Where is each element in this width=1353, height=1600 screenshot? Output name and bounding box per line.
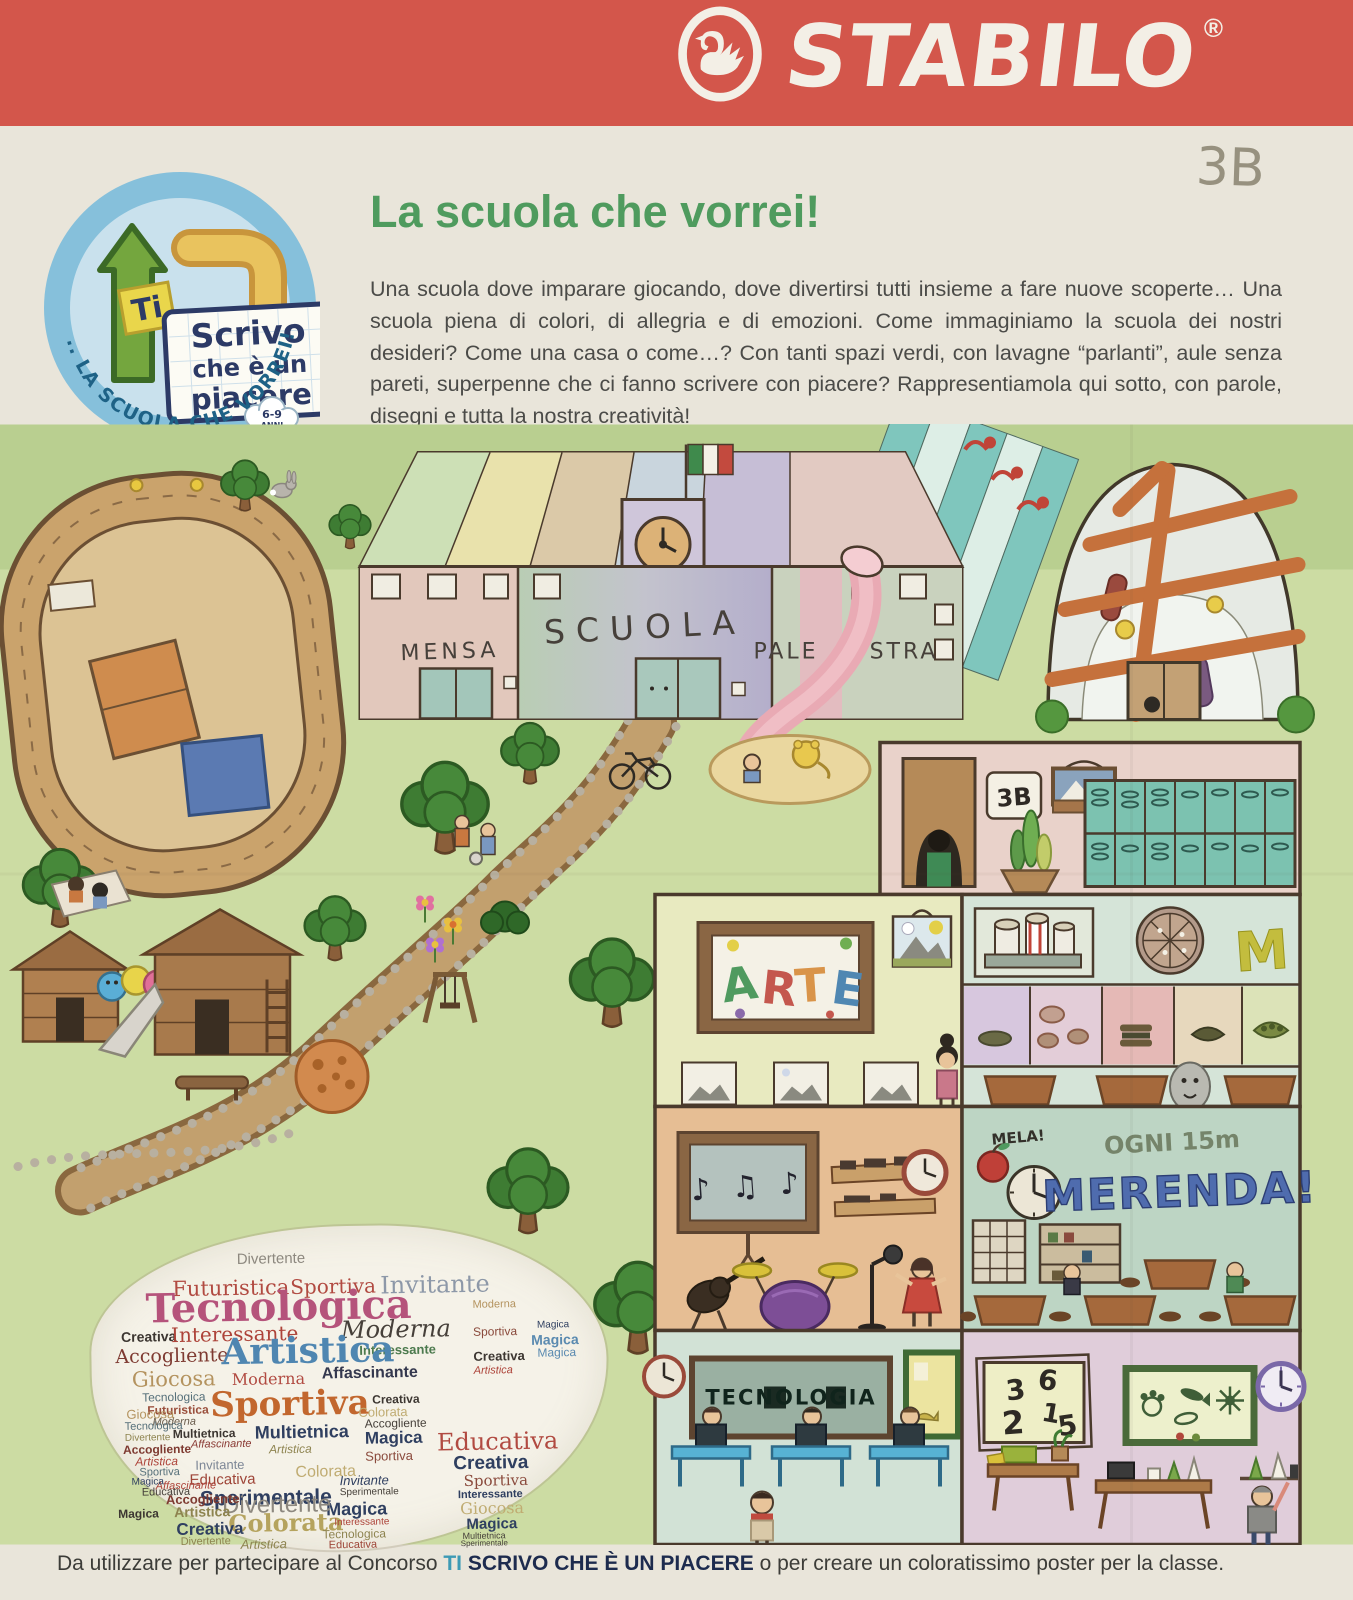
arte-room: A R T E bbox=[655, 895, 962, 1133]
word-cloud-word: Divertente bbox=[181, 1536, 231, 1548]
fold-line-horizontal bbox=[0, 873, 1353, 876]
word-cloud-word: Creativa bbox=[121, 1329, 177, 1344]
small-painting bbox=[893, 911, 951, 967]
number-2: 2 bbox=[1001, 1403, 1026, 1442]
registered-mark: ® bbox=[1204, 13, 1223, 44]
poster-page: STABILO ® 3B La scuola che vorrei! Una s… bbox=[0, 0, 1353, 1600]
word-cloud-word: Accogliente bbox=[115, 1346, 228, 1367]
ghost-figure bbox=[1170, 1063, 1210, 1111]
tecnologia-label: TECNOLOGIA bbox=[705, 1386, 876, 1410]
sushi-counter bbox=[975, 909, 1093, 977]
merenda-label: MERENDA! bbox=[1042, 1163, 1319, 1223]
word-cloud-word: Artistica bbox=[269, 1443, 312, 1456]
intro-paragraph: Una scuola dove imparare giocando, dove … bbox=[370, 274, 1282, 433]
tecnologia-room: TECNOLOGIA bbox=[644, 1331, 962, 1545]
blue-court bbox=[182, 736, 269, 816]
locker-sign-text: 3B bbox=[996, 782, 1033, 812]
word-cloud-word: Magica bbox=[365, 1429, 423, 1447]
stabilo-logo: STABILO ® bbox=[672, 6, 1215, 107]
footer-note: Da utilizzare per partecipare al Concors… bbox=[57, 1552, 1224, 1576]
pizza bbox=[1137, 908, 1203, 974]
standing-kid bbox=[751, 1492, 773, 1545]
word-cloud-word: Educativa bbox=[437, 1428, 559, 1454]
footer-prefix: Da utilizzare per partecipare al Concors… bbox=[57, 1552, 443, 1575]
word-cloud-word: Sportiva bbox=[210, 1386, 370, 1423]
footer-contest-ti: TI bbox=[443, 1552, 462, 1575]
word-cloud-word: Invitante bbox=[195, 1458, 244, 1472]
word-cloud-word: Sportiva bbox=[473, 1325, 517, 1338]
vending-machine bbox=[973, 1221, 1025, 1283]
footer-suffix: o per creare un coloratissimo poster per… bbox=[754, 1552, 1224, 1575]
lockers bbox=[1085, 781, 1295, 887]
word-cloud-word: Sperimentale bbox=[461, 1539, 508, 1548]
word-cloud-word: Affascinante bbox=[191, 1439, 252, 1451]
word-cloud-word: Invitante bbox=[340, 1473, 389, 1487]
age-line1: 6-9 bbox=[262, 408, 282, 421]
swan-icon bbox=[672, 6, 786, 107]
word-cloud-word: Giocosa bbox=[132, 1368, 216, 1390]
lockers-room: 3B bbox=[880, 743, 1300, 895]
mensa-label: MENSA bbox=[400, 638, 500, 666]
palestra-label-left: PALE bbox=[753, 640, 818, 665]
word-cloud-word: Giocosa bbox=[126, 1407, 174, 1421]
cells-painting bbox=[1126, 1369, 1254, 1443]
logo-ti-text: Ti bbox=[129, 290, 165, 330]
word-cloud-word: Magica bbox=[537, 1320, 569, 1331]
word-cloud-word: Educativa bbox=[329, 1540, 377, 1552]
mcdonalds-m-logo: M bbox=[1233, 918, 1291, 985]
word-cloud-word: Artistica bbox=[474, 1365, 513, 1377]
word-cloud-word: Tecnologica bbox=[125, 1421, 183, 1433]
climbing-rock bbox=[296, 1041, 368, 1113]
footer-contest-name: SCRIVO CHE È UN PIACERE bbox=[462, 1552, 754, 1575]
fold-line-vertical bbox=[1130, 425, 1133, 1545]
page-title: La scuola che vorrei! bbox=[370, 186, 820, 238]
arte-frame: A R T E bbox=[698, 923, 873, 1033]
numbers-board: 3 6 2 1 5 bbox=[976, 1355, 1091, 1451]
merenda-room: MELA! OGNI 15m MERENDA! bbox=[960, 1107, 1318, 1331]
sandpit bbox=[710, 736, 870, 804]
music-room: ♪ ♫ ♪ bbox=[655, 1107, 962, 1332]
word-cloud-word: Creativa bbox=[372, 1393, 420, 1406]
word-cloud-word: Educativa bbox=[142, 1487, 190, 1499]
palestra-label-right: STRA bbox=[870, 640, 939, 665]
word-cloud-word: Magica bbox=[537, 1346, 576, 1359]
class-label-handwritten: 3B bbox=[1195, 137, 1266, 199]
word-cloud-word: Colorata bbox=[358, 1405, 407, 1419]
number-3: 3 bbox=[1004, 1373, 1027, 1408]
word-cloud-word: Affascinante bbox=[322, 1365, 418, 1383]
word-cloud-word: Creativa bbox=[473, 1349, 525, 1363]
word-cloud-word: Artistica bbox=[241, 1537, 287, 1551]
word-cloud-word: Divertente bbox=[237, 1251, 306, 1267]
word-cloud-word: Magica bbox=[118, 1507, 159, 1520]
arte-label: A R T E bbox=[718, 955, 867, 1018]
stabilo-banner: STABILO ® bbox=[0, 0, 1353, 126]
contest-logo: Ti Scrivo che è un piacere 6-9 bbox=[40, 168, 320, 448]
word-cloud-word: Sperimentale bbox=[340, 1487, 399, 1498]
music-clock bbox=[904, 1152, 946, 1194]
word-cloud-word: Tecnologica bbox=[142, 1391, 206, 1404]
tecnologia-clock bbox=[644, 1357, 684, 1397]
word-cloud-word: Multietnica bbox=[255, 1422, 349, 1442]
word-cloud-word: Moderna bbox=[472, 1299, 516, 1311]
word-cloud-word: Sportiva bbox=[464, 1473, 529, 1489]
stabilo-wordmark: STABILO bbox=[781, 14, 1201, 100]
science-clock bbox=[1258, 1364, 1304, 1410]
word-cloud-word: Sportiva bbox=[365, 1449, 413, 1463]
